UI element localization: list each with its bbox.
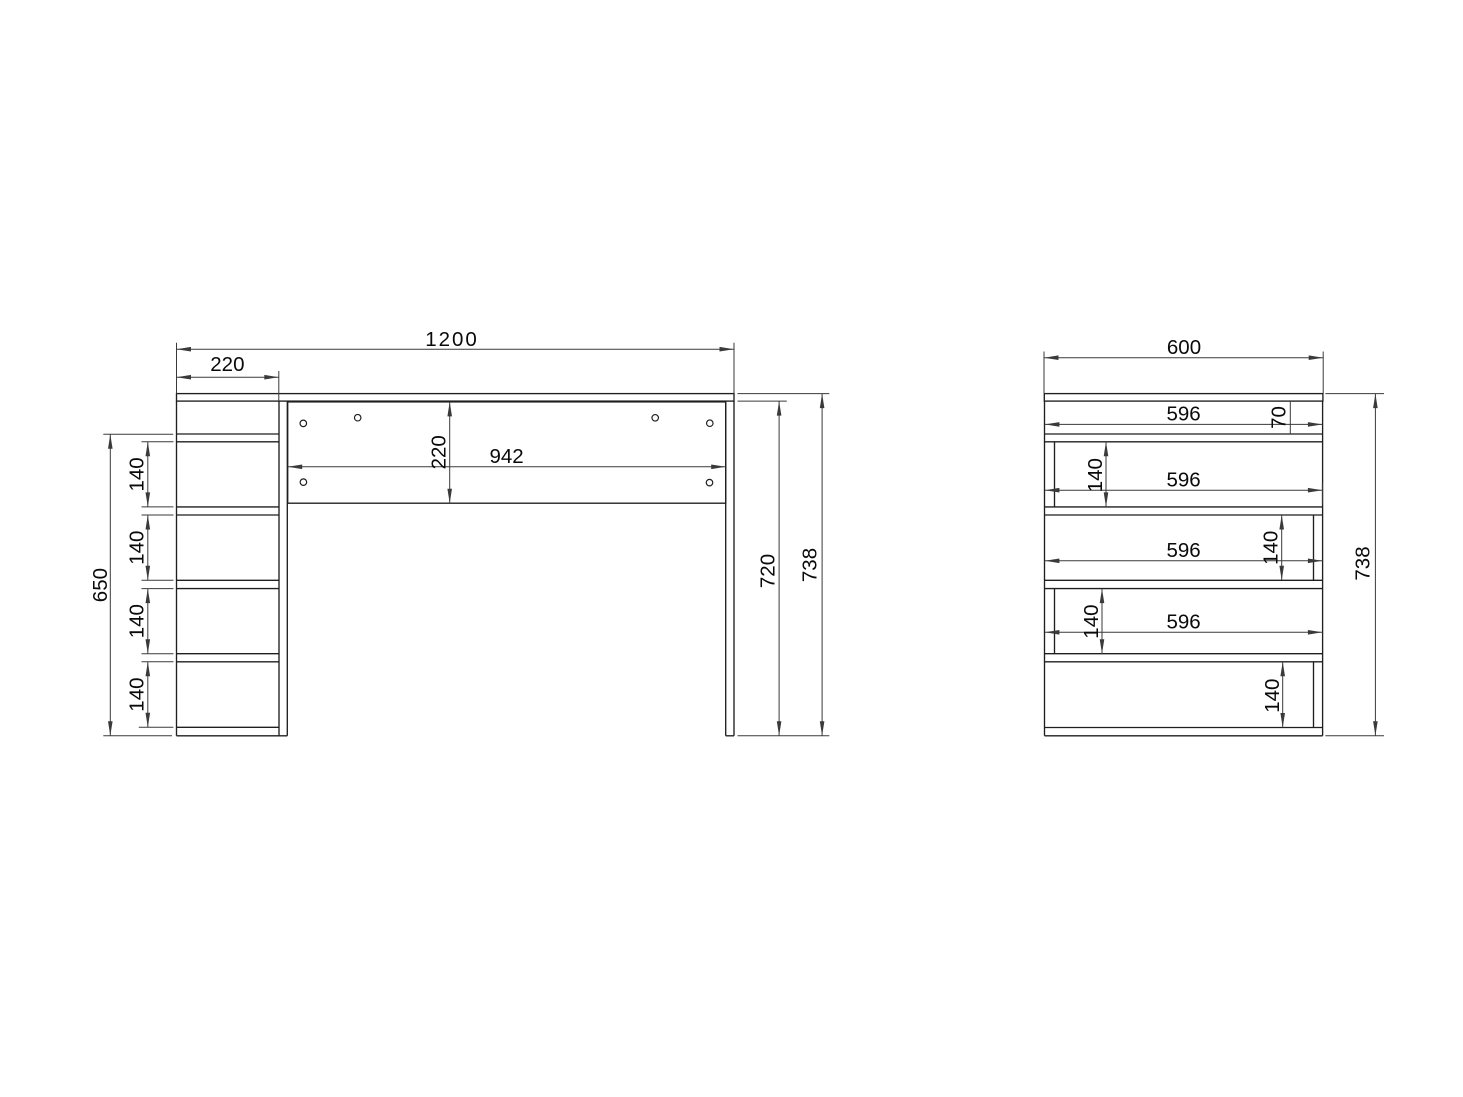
svg-text:738: 738	[1352, 546, 1375, 580]
svg-text:140: 140	[1260, 531, 1283, 565]
svg-text:140: 140	[1084, 458, 1107, 492]
svg-text:738: 738	[798, 548, 821, 582]
svg-text:140: 140	[1261, 679, 1284, 713]
svg-text:140: 140	[1080, 604, 1103, 638]
svg-text:596: 596	[1166, 539, 1200, 562]
svg-text:600: 600	[1167, 336, 1201, 359]
svg-text:220: 220	[210, 353, 244, 376]
svg-text:140: 140	[125, 604, 148, 638]
svg-text:596: 596	[1166, 403, 1200, 426]
svg-text:720: 720	[756, 554, 779, 588]
svg-text:1200: 1200	[425, 328, 479, 351]
svg-text:220: 220	[427, 435, 450, 469]
svg-text:650: 650	[89, 568, 112, 602]
svg-text:140: 140	[125, 531, 148, 565]
svg-text:596: 596	[1166, 611, 1200, 634]
svg-text:140: 140	[125, 677, 148, 711]
svg-text:596: 596	[1166, 468, 1200, 491]
svg-text:70: 70	[1268, 406, 1291, 429]
svg-text:140: 140	[125, 457, 148, 491]
svg-text:942: 942	[489, 445, 523, 468]
